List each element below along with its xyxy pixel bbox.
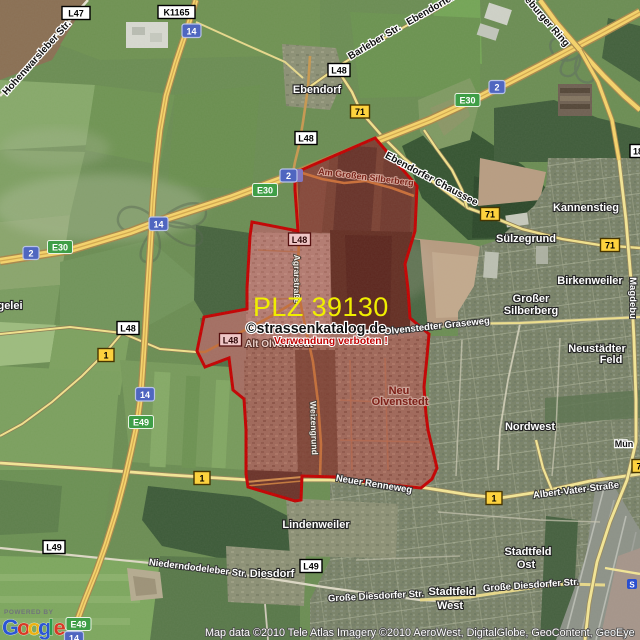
svg-text:L47: L47 [68,9,84,19]
svg-text:2: 2 [494,83,499,93]
svg-text:L48: L48 [292,235,308,245]
svg-text:©strassenkatalog.de: ©strassenkatalog.de [246,321,386,337]
svg-text:E30: E30 [459,96,475,106]
svg-text:Magdebu: Magdebu [627,277,638,319]
svg-text:Stadtfeld: Stadtfeld [504,546,551,558]
svg-text:7: 7 [636,462,640,472]
svg-text:71: 71 [605,241,615,251]
svg-text:14: 14 [186,27,196,37]
svg-text:2: 2 [286,171,291,181]
svg-text:E30: E30 [257,186,273,196]
svg-text:Verwendung verboten !: Verwendung verboten ! [274,336,388,347]
svg-text:2: 2 [28,249,33,259]
svg-text:gelei: gelei [0,300,23,312]
svg-text:1: 1 [491,494,496,504]
svg-text:Großer: Großer [513,293,550,305]
svg-text:Sülzegrund: Sülzegrund [496,233,556,245]
svg-text:1: 1 [199,474,204,484]
svg-text:Diesdorf: Diesdorf [250,568,295,580]
svg-text:1: 1 [103,351,108,361]
svg-text:E30: E30 [52,243,68,253]
svg-text:14: 14 [153,220,163,230]
svg-text:S: S [629,581,635,590]
svg-text:71: 71 [355,107,365,117]
svg-text:Stadtfeld: Stadtfeld [428,586,475,598]
svg-text:Birkenweiler: Birkenweiler [557,275,623,287]
svg-text:L49: L49 [46,543,62,553]
svg-text:PLZ 39130: PLZ 39130 [253,292,389,322]
svg-text:L49: L49 [303,562,319,572]
svg-text:Mün: Mün [615,439,634,449]
svg-text:E49: E49 [70,620,86,630]
svg-text:Nordwest: Nordwest [505,421,555,433]
svg-text:Lindenweiler: Lindenweiler [282,519,350,531]
svg-text:Weizengrund: Weizengrund [308,401,320,455]
svg-text:Kannenstieg: Kannenstieg [553,202,619,214]
svg-text:18: 18 [633,147,640,157]
svg-text:71: 71 [485,210,495,220]
svg-text:14: 14 [140,390,150,400]
svg-text:L48: L48 [120,324,136,334]
svg-text:K1165: K1165 [163,8,189,18]
svg-text:L48: L48 [223,335,239,345]
svg-text:L48: L48 [298,134,314,144]
svg-text:Map data ©2010 Tele Atlas Ima: Map data ©2010 Tele Atlas Imagery ©2010 … [205,627,635,639]
svg-text:Ost: Ost [517,559,536,571]
svg-text:Feld: Feld [600,354,623,366]
svg-text:L48: L48 [331,66,347,76]
svg-text:e: e [54,615,66,640]
svg-text:14: 14 [69,634,79,640]
svg-text:E49: E49 [133,418,149,428]
svg-text:Silberberg: Silberberg [504,305,558,317]
svg-text:Ebendorf: Ebendorf [293,84,342,96]
svg-text:Olvenstedt: Olvenstedt [372,396,429,408]
svg-text:West: West [437,600,463,612]
